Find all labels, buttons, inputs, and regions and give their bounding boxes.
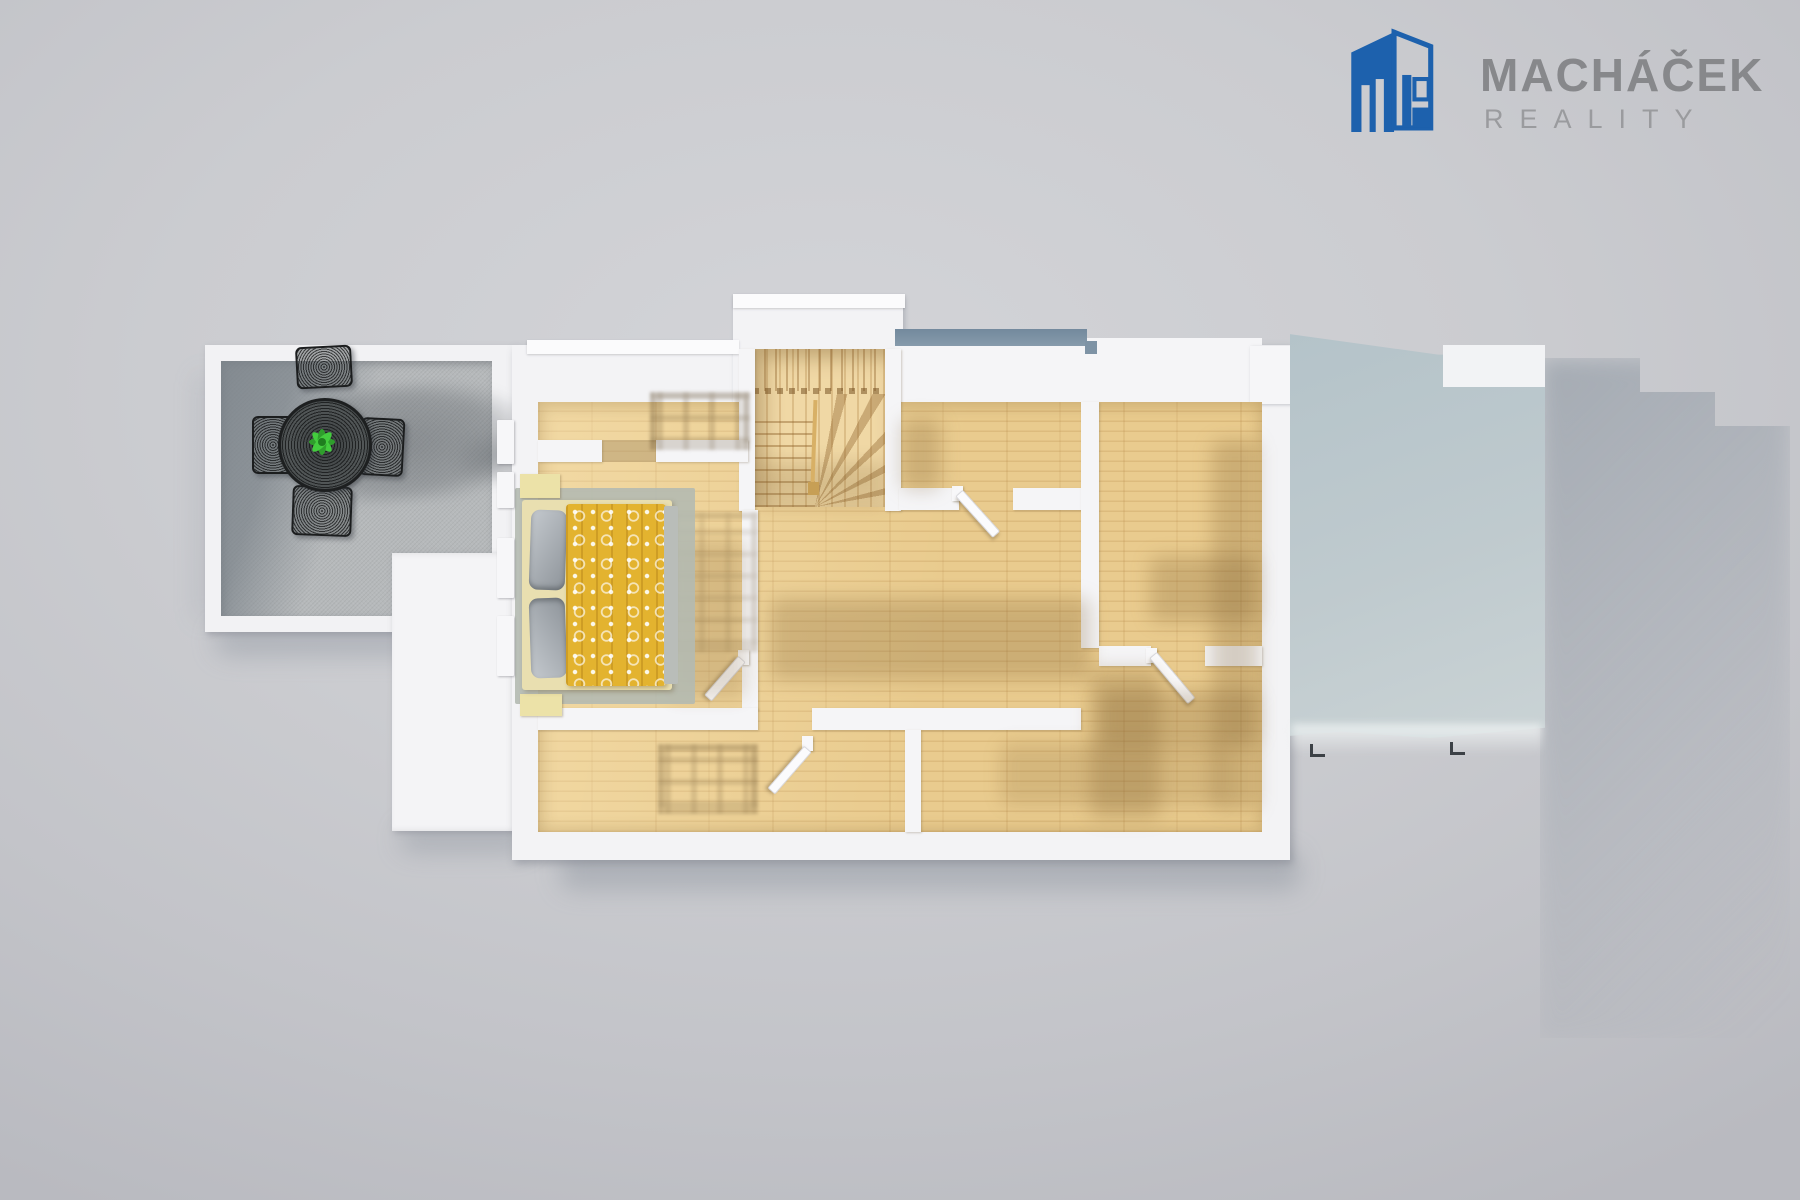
chair-south: [291, 485, 353, 537]
west-window-tab-1: [497, 420, 514, 464]
wall-right-h-a: [1099, 646, 1151, 666]
stair-landing-shadow: [753, 462, 887, 506]
chair-north: [295, 345, 353, 390]
wall-bedroom-north-a: [538, 440, 602, 462]
shadow-bottom-right: [1000, 742, 1226, 806]
west-window-tab-4: [497, 616, 514, 676]
brand-subtitle: REALITY: [1484, 104, 1709, 135]
stair-upper-flight: [753, 349, 887, 391]
gutter-hook-1: [1310, 744, 1325, 757]
northeast-wall-patch: [895, 338, 1262, 408]
annex-gutter-glow: [1292, 724, 1542, 754]
west-window-tab-2: [497, 472, 514, 508]
annex-roof-notch: [1443, 345, 1545, 387]
window-lintel-shadow: [602, 440, 656, 462]
nightstand-north: [520, 474, 560, 498]
potted-plant: [300, 420, 344, 464]
bed-footboard-bench: [664, 506, 678, 684]
gutter-hook-2: [1450, 742, 1465, 755]
bed-pillow-1: [529, 509, 568, 590]
shadow-topright-room: [1150, 556, 1258, 622]
eave-bumpout: [733, 294, 905, 308]
nightstand-south: [520, 694, 562, 716]
logo: MACHÁČEK REALITY: [1345, 20, 1775, 140]
annex-roof: [1290, 330, 1545, 740]
floorplan-render-scene: MACHÁČEK REALITY: [0, 0, 1800, 1200]
bed-duvet: [566, 504, 666, 686]
north-window-sliver: [1085, 341, 1097, 354]
window-shadow-topleft: [650, 392, 750, 450]
logo-icon: [1345, 22, 1437, 132]
annex-cast-shadow: [1540, 358, 1790, 1038]
wall-hall-a: [899, 488, 959, 510]
shadow-stair-east: [901, 418, 941, 490]
stairwell-wall-east: [885, 349, 901, 511]
wall-hall-b: [1013, 488, 1083, 510]
wall-bottom-divider: [905, 730, 921, 832]
stair-newel-post: [808, 482, 819, 495]
north-window-strip: [895, 329, 1087, 346]
wall-south-interior-a: [538, 708, 758, 730]
brand-name: MACHÁČEK: [1480, 48, 1764, 102]
window-shadow-bottom: [658, 744, 758, 814]
shadow-hall-band: [770, 598, 1090, 680]
west-window-tab-3: [497, 538, 514, 598]
wall-south-interior-b: [812, 708, 1081, 730]
bed-pillow-2: [529, 597, 568, 678]
eave-northwest: [527, 340, 739, 354]
